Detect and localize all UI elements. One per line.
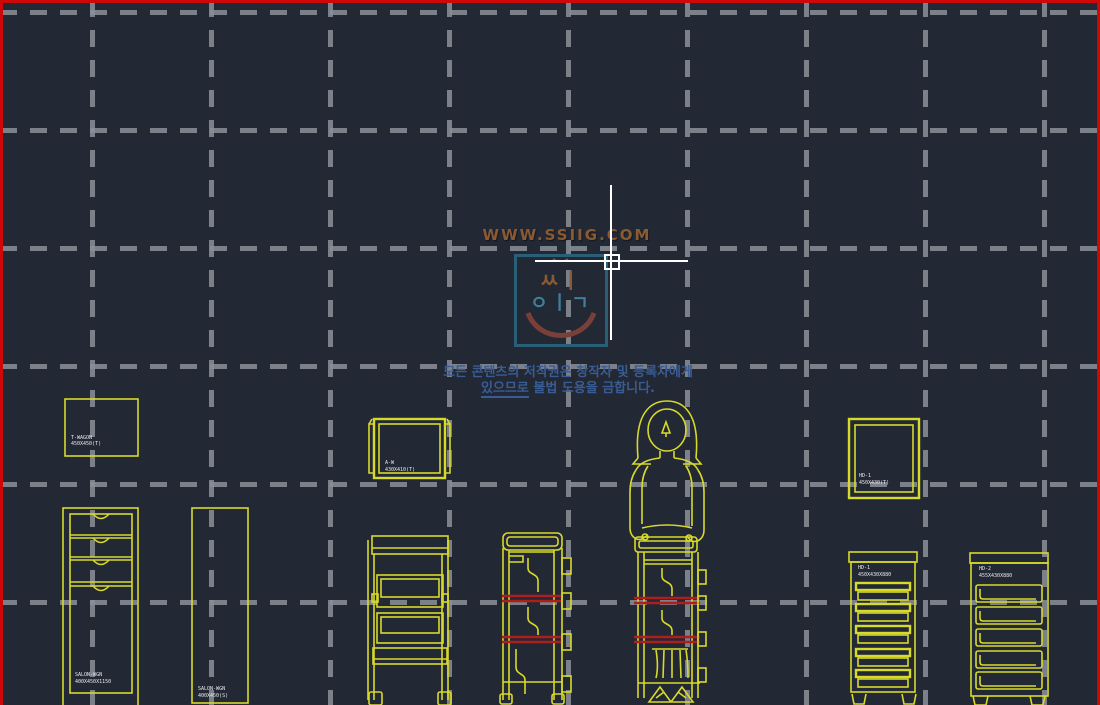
copyright-line1: 모든 콘텐츠의 저작권은 창작자 및 등록자에게 [412,365,724,381]
block-cabinet-right-b[interactable]: HD-2 455X430X880 [967,551,1051,705]
block-label: SALON-WGN [75,672,102,678]
block-label: 400X450(S) [198,693,228,699]
block-cabinet-left[interactable]: SALON-WGN 400X450X1150 [61,506,141,705]
watermark-logo: ^ ^ ㅆㅣ ㅇㅣㄱ [514,254,608,347]
logo-smile-arc [523,309,599,343]
block-label: A-W [385,460,394,466]
grid-line-horizontal [0,482,1100,487]
block-rect-tall[interactable]: SALON-WGN 400X450(S) [190,506,250,705]
block-label: SALON-WGN [198,686,225,692]
copyright-line2: 있으므로 불법 도용을 금합니다. [412,381,724,397]
block-label: 430X410(T) [385,467,415,473]
block-rect-top-left[interactable]: T-WAGON 450X450(T) [63,397,141,459]
block-label: 450X430X880 [858,572,891,578]
block-label: HD-1 [859,473,871,479]
block-trolley-person[interactable] [622,530,712,705]
watermark-url-text: WWW.SSIIG.COM [417,226,717,244]
block-person-figure[interactable] [620,396,715,548]
copyright-notice: 모든 콘텐츠의 저작권은 창작자 및 등록자에게 있으므로 불법 도용을 금합니… [412,365,724,397]
cad-viewport[interactable]: WWW.SSIIG.COM ^ ^ ㅆㅣ ㅇㅣㄱ 모든 콘텐츠의 저작권은 창작… [0,0,1100,705]
grid-line-horizontal [0,246,1100,251]
block-label: 455X430X880 [979,573,1012,579]
block-label: HD-1 [858,565,870,571]
block-cabinet-right-a[interactable]: HD-1 450X430X880 [846,550,922,705]
copyright-line2-rest: 불법 도용을 금합니다. [529,381,655,396]
block-label: 450X450(T) [71,441,101,447]
block-trolley-front[interactable] [364,532,454,705]
grid-line-horizontal [0,10,1100,15]
copyright-line2-underlined: 있으므로 [481,381,529,398]
grid-line-horizontal [0,128,1100,133]
block-label: 400X450X1150 [75,679,111,685]
block-label: HD-2 [979,566,991,572]
block-trolley-side[interactable] [498,530,576,705]
block-topview-mid[interactable]: A-W 430X410(T) [366,412,454,482]
block-topview-right[interactable]: HD-1 450X430(T) [846,416,922,501]
block-label: 450X430(T) [859,480,889,486]
